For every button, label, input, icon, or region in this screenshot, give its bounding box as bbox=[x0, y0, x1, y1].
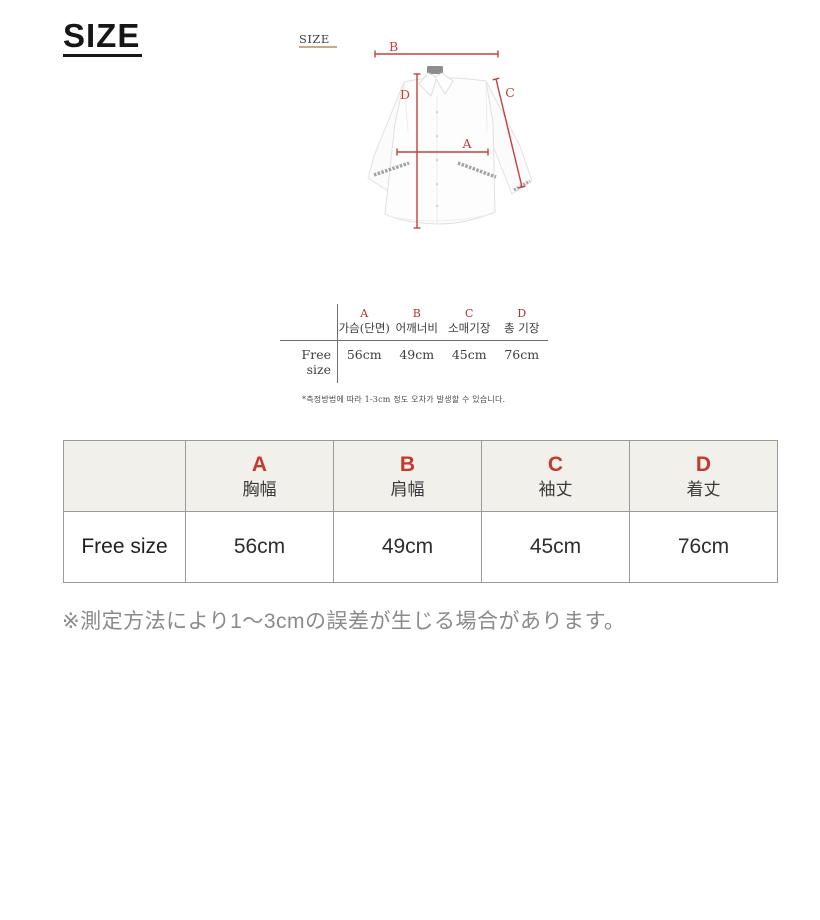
col-label: 가슴(단면) bbox=[338, 321, 391, 335]
col-letter: C bbox=[443, 307, 496, 320]
col-label: 袖丈 bbox=[482, 479, 629, 501]
size-guide-page: { "page": { "title": "SIZE" }, "diagram"… bbox=[0, 0, 820, 920]
japanese-measurement-note: ※測定方法により1〜3cmの誤差が生じる場合があります。 bbox=[62, 605, 625, 635]
col-letter: A bbox=[338, 307, 391, 320]
col-label: 肩幅 bbox=[334, 479, 481, 501]
korean-table-corner bbox=[280, 304, 338, 340]
col-letter: C bbox=[482, 452, 629, 477]
col-letter: D bbox=[630, 452, 777, 477]
value-cell: 56cm bbox=[186, 512, 334, 583]
col-letter: B bbox=[391, 307, 444, 320]
value-cell: 56cm bbox=[338, 341, 391, 383]
value-cell: 45cm bbox=[482, 512, 630, 583]
value-cell: 45cm bbox=[443, 341, 496, 383]
col-letter: B bbox=[334, 452, 481, 477]
korean-col-b: B 어깨너비 bbox=[391, 304, 444, 340]
col-letter: D bbox=[496, 307, 549, 320]
marker-b: B bbox=[389, 39, 398, 54]
korean-col-d: D 총 기장 bbox=[496, 304, 549, 340]
value-cell: 49cm bbox=[391, 341, 444, 383]
japanese-col-d: D 着丈 bbox=[630, 441, 778, 512]
korean-col-c: C 소매기장 bbox=[443, 304, 496, 340]
japanese-table-header: A 胸幅 B 肩幅 C 袖丈 D 着丈 bbox=[64, 441, 778, 512]
col-label: 소매기장 bbox=[443, 321, 496, 335]
value-cell: 49cm bbox=[334, 512, 482, 583]
diagram-size-label: SIZE bbox=[299, 32, 330, 46]
korean-table-row: Free size 56cm 49cm 45cm 76cm bbox=[280, 341, 548, 383]
japanese-col-a: A 胸幅 bbox=[186, 441, 334, 512]
product-measurement-diagram: SIZE bbox=[290, 28, 546, 240]
col-label: 어깨너비 bbox=[391, 321, 444, 335]
korean-measurement-note: *측정방법에 따라 1-3cm 정도 오차가 발생할 수 있습니다. bbox=[302, 394, 505, 405]
size-table-japanese: A 胸幅 B 肩幅 C 袖丈 D 着丈 Free size 56cm 49cm … bbox=[63, 440, 778, 583]
col-label: 총 기장 bbox=[496, 321, 549, 335]
page-title: SIZE bbox=[63, 19, 142, 57]
marker-d: D bbox=[400, 87, 410, 102]
size-table-korean: A 가슴(단면) B 어깨너비 C 소매기장 D 총 기장 Free size … bbox=[280, 304, 548, 383]
korean-col-a: A 가슴(단면) bbox=[338, 304, 391, 340]
japanese-table-row: Free size 56cm 49cm 45cm 76cm bbox=[64, 512, 778, 583]
collar-band bbox=[427, 66, 443, 74]
row-label: Free size bbox=[280, 341, 338, 383]
row-label: Free size bbox=[64, 512, 186, 583]
col-label: 着丈 bbox=[630, 479, 777, 501]
japanese-col-b: B 肩幅 bbox=[334, 441, 482, 512]
korean-table-header: A 가슴(단면) B 어깨너비 C 소매기장 D 총 기장 bbox=[280, 304, 548, 341]
value-cell: 76cm bbox=[630, 512, 778, 583]
marker-a: A bbox=[461, 136, 472, 151]
col-label: 胸幅 bbox=[186, 479, 333, 501]
col-letter: A bbox=[186, 452, 333, 477]
shirt-diagram-svg: SIZE bbox=[290, 28, 546, 240]
japanese-table-corner bbox=[64, 441, 186, 512]
japanese-col-c: C 袖丈 bbox=[482, 441, 630, 512]
marker-c: C bbox=[505, 85, 515, 100]
value-cell: 76cm bbox=[496, 341, 549, 383]
